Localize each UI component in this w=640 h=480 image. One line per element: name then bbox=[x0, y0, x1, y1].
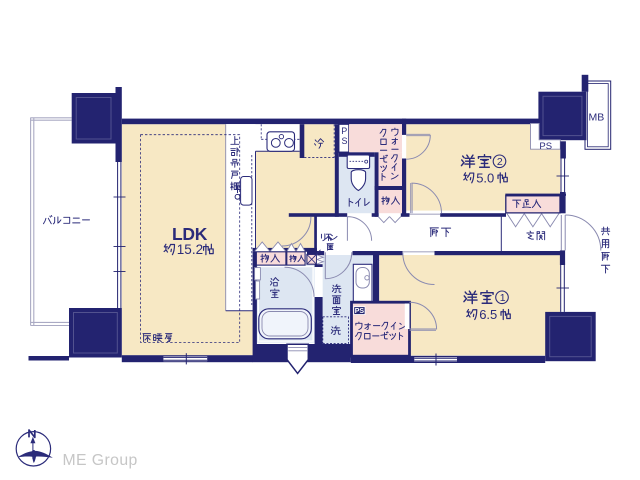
svg-text:MB: MB bbox=[589, 112, 605, 124]
svg-text:PS: PS bbox=[355, 308, 365, 315]
svg-text:LDK: LDK bbox=[172, 224, 208, 244]
svg-text:PS: PS bbox=[539, 141, 552, 152]
svg-text:6.5: 6.5 bbox=[479, 307, 497, 322]
svg-text:15.2: 15.2 bbox=[177, 242, 203, 257]
svg-text:2: 2 bbox=[497, 156, 503, 168]
svg-text:5.0: 5.0 bbox=[476, 170, 494, 185]
svg-text:1: 1 bbox=[500, 292, 506, 304]
svg-text:S: S bbox=[342, 136, 348, 146]
svg-text:ME Group: ME Group bbox=[63, 452, 138, 469]
svg-text:P: P bbox=[341, 126, 347, 136]
